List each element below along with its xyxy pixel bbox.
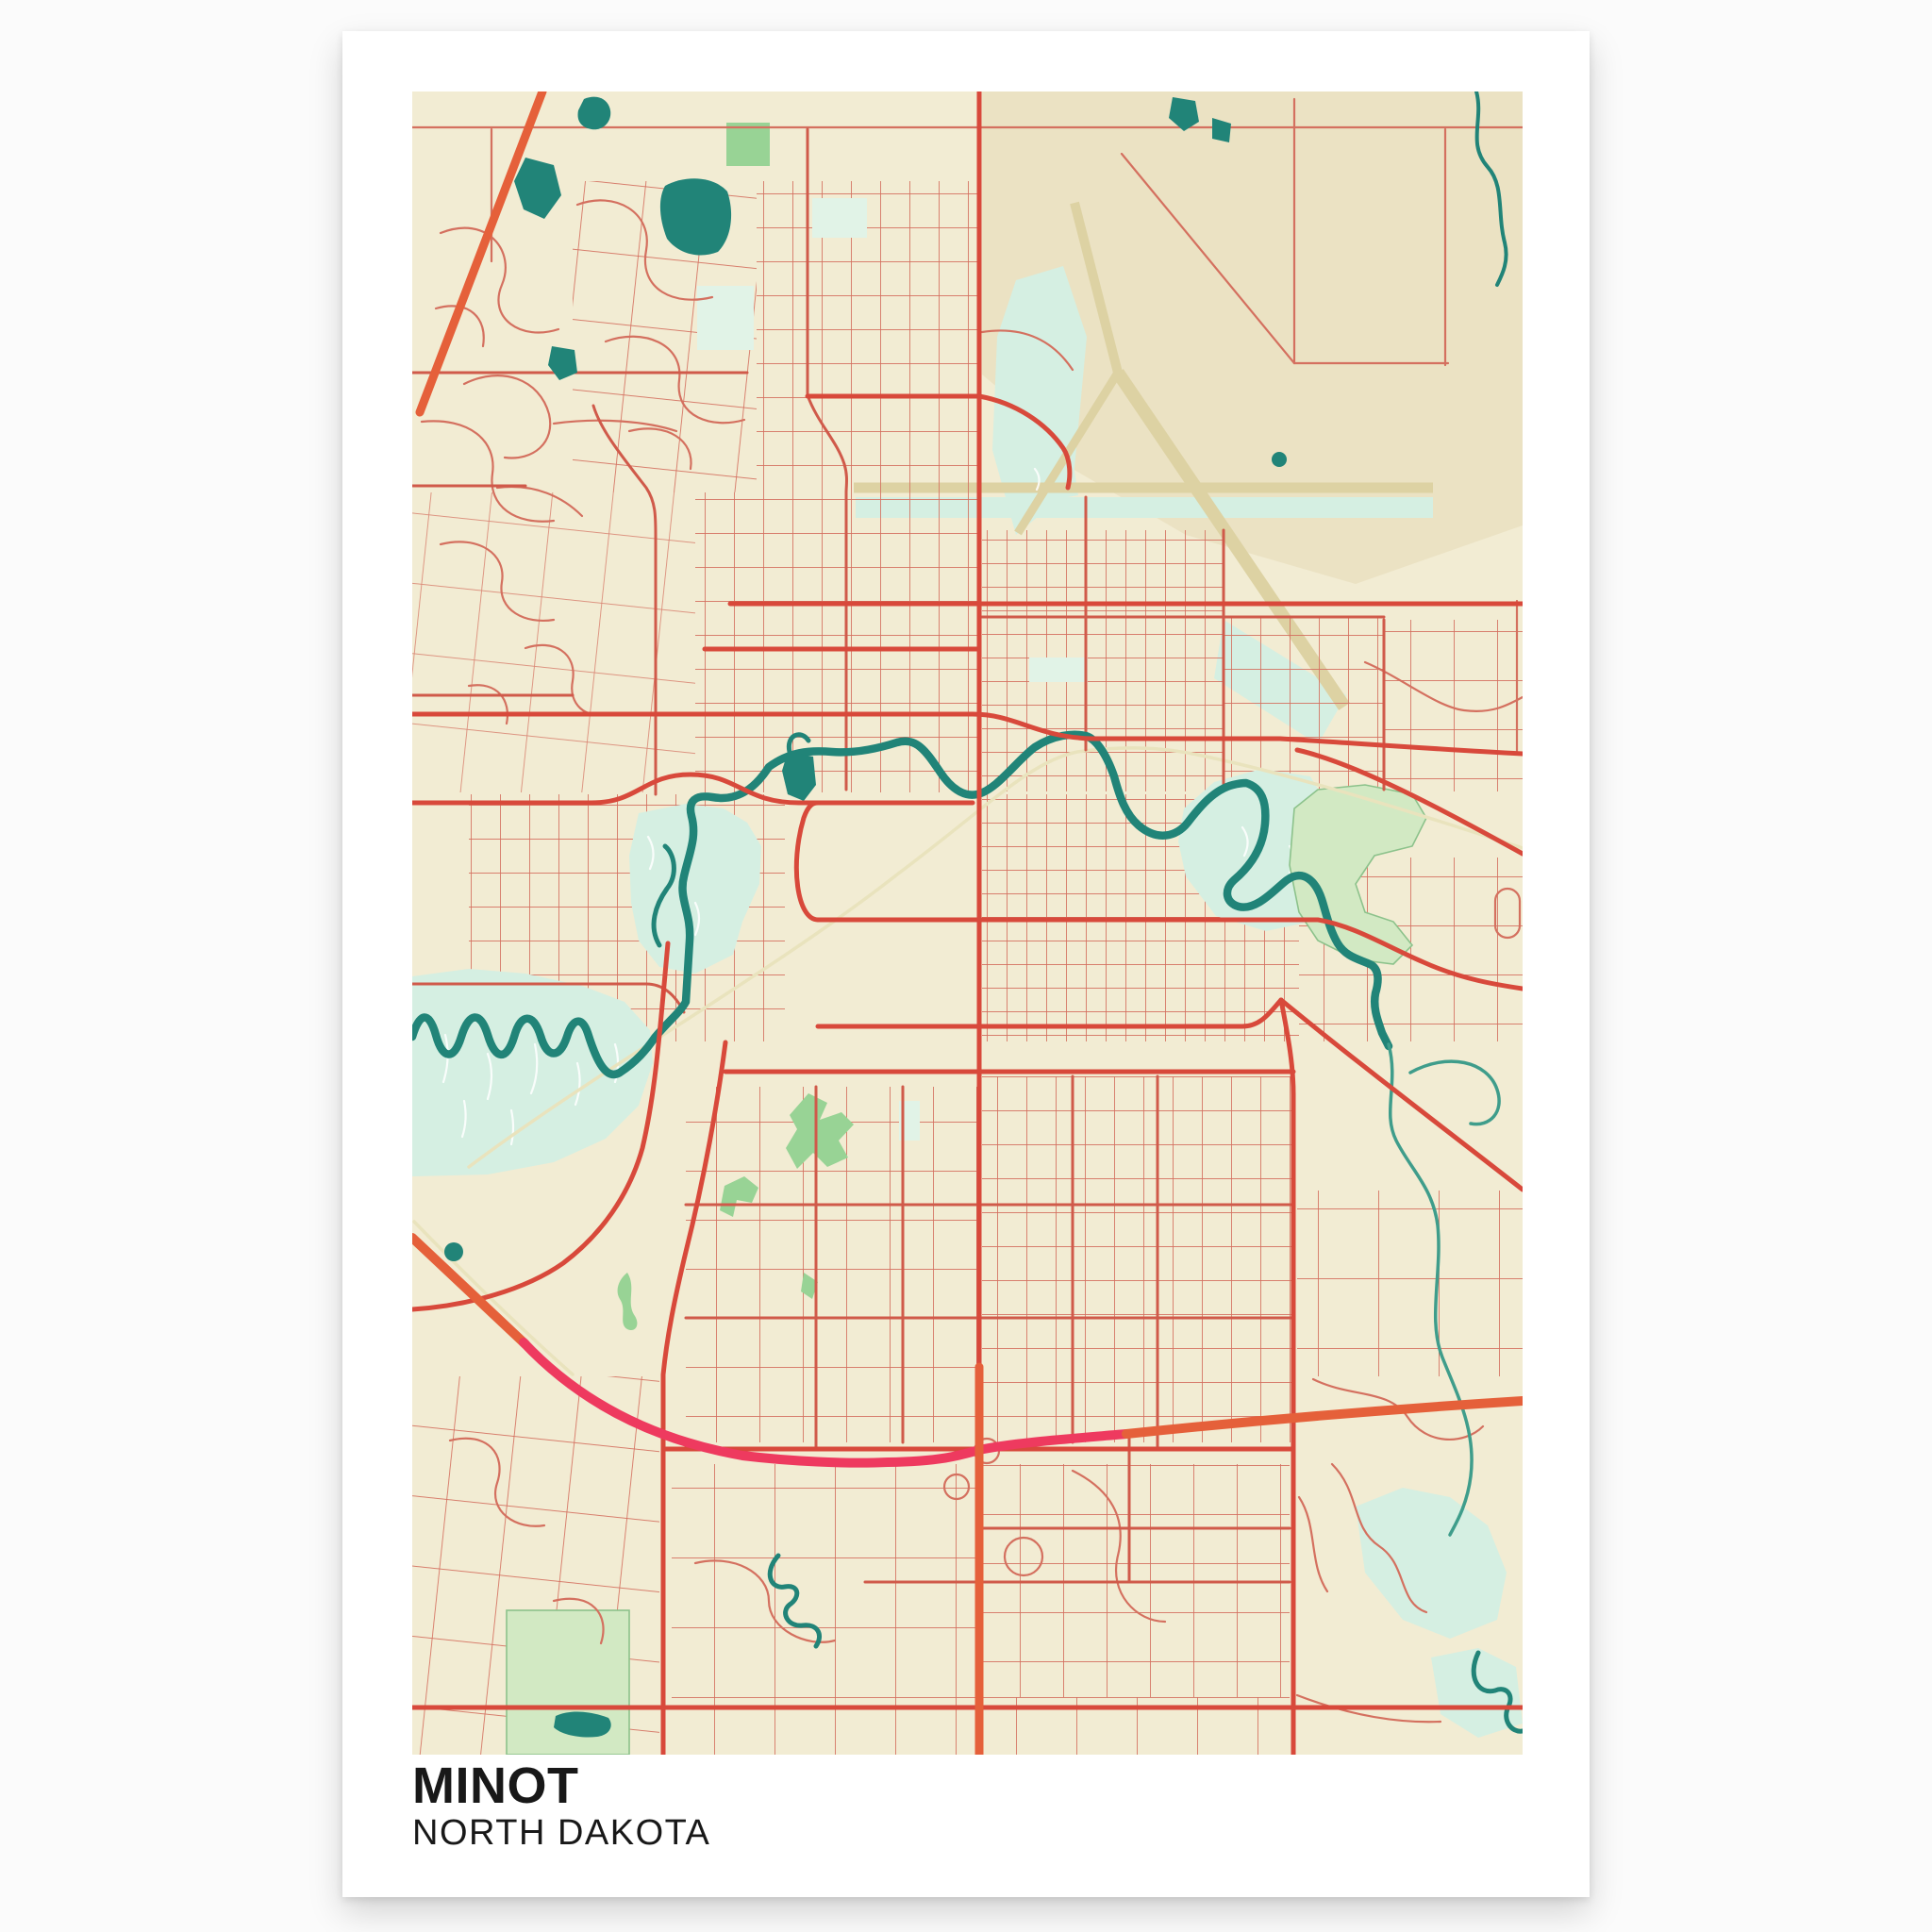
city-map-svg xyxy=(412,92,1523,1755)
poster-caption: MINOT NORTH DAKOTA xyxy=(412,1760,710,1851)
poster-title: MINOT xyxy=(412,1760,710,1811)
page-background: { "poster": { "title": "MINOT", "subtitl… xyxy=(0,0,1932,1932)
poster-card: MINOT NORTH DAKOTA xyxy=(342,31,1590,1897)
city-map xyxy=(412,92,1523,1755)
poster-subtitle: NORTH DAKOTA xyxy=(412,1815,710,1851)
